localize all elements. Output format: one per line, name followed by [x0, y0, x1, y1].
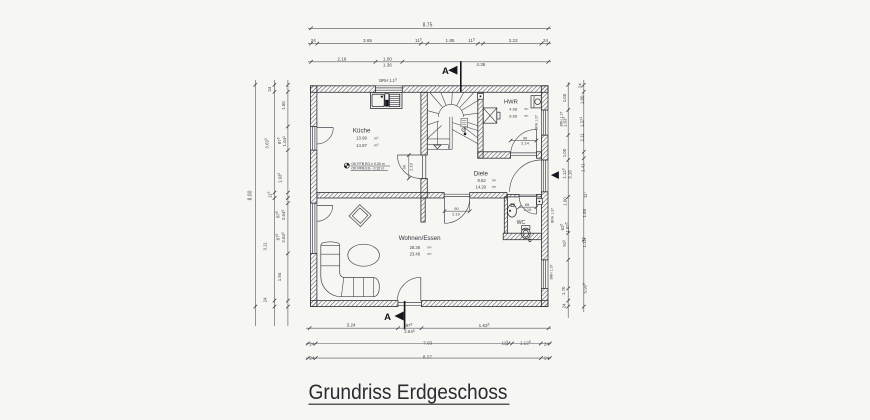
svg-text:Diele: Diele: [474, 171, 489, 178]
svg-text:2.22: 2.22: [509, 38, 518, 43]
svg-text:Grundriss Erdgeschoss: Grundriss Erdgeschoss: [309, 381, 508, 404]
svg-text:1.00: 1.00: [562, 93, 567, 102]
svg-text:3.16: 3.16: [567, 170, 572, 179]
svg-text:14.97: 14.97: [356, 143, 367, 148]
svg-text:A: A: [384, 312, 391, 323]
svg-text:28.36: 28.36: [410, 245, 421, 250]
svg-text:24: 24: [311, 38, 317, 43]
svg-text:90: 90: [454, 206, 459, 211]
svg-text:4.36: 4.36: [476, 62, 485, 67]
svg-text:1.00: 1.00: [562, 148, 567, 157]
svg-text:BRH 1.27: BRH 1.27: [535, 115, 539, 130]
svg-text:HWR: HWR: [504, 99, 518, 105]
svg-text:24: 24: [309, 356, 315, 361]
svg-text:2.14: 2.14: [521, 141, 530, 146]
svg-text:13.99: 13.99: [356, 136, 367, 141]
svg-text:OK RFB EG - 0.32 m: OK RFB EG - 0.32 m: [351, 167, 384, 171]
svg-text:1.50: 1.50: [281, 101, 286, 110]
svg-text:3.11: 3.11: [263, 242, 268, 251]
svg-text:2.19: 2.19: [408, 162, 413, 171]
svg-text:BRH 1.37: BRH 1.37: [551, 208, 555, 223]
svg-text:BRH 1.37: BRH 1.37: [550, 265, 554, 280]
svg-text:1.00: 1.00: [579, 95, 584, 104]
svg-text:8.75: 8.75: [423, 23, 433, 29]
svg-text:2.11: 2.11: [579, 133, 584, 142]
svg-text:WC: WC: [517, 220, 526, 226]
svg-text:24: 24: [544, 341, 550, 346]
svg-text:24: 24: [309, 341, 315, 346]
svg-text:1.69: 1.69: [582, 208, 587, 217]
svg-text:96: 96: [523, 135, 528, 140]
svg-text:Küche: Küche: [353, 128, 371, 135]
svg-text:24: 24: [577, 83, 582, 88]
svg-text:1.94: 1.94: [277, 272, 282, 281]
svg-text:1.00: 1.00: [383, 57, 392, 62]
svg-text:A: A: [442, 66, 449, 77]
svg-text:3.65: 3.65: [363, 38, 372, 43]
svg-text:14.29: 14.29: [476, 185, 487, 190]
svg-text:24: 24: [544, 356, 550, 361]
svg-text:24: 24: [562, 303, 567, 308]
svg-text:BRH 1.27: BRH 1.27: [559, 112, 563, 127]
svg-text:8.66: 8.66: [509, 114, 518, 119]
svg-text:4.68: 4.68: [509, 106, 518, 111]
svg-text:2.19: 2.19: [452, 211, 461, 216]
svg-text:Wohnen/Essen: Wohnen/Essen: [399, 235, 441, 242]
svg-text:8.00: 8.00: [248, 190, 254, 200]
svg-text:1.36: 1.36: [383, 62, 392, 67]
svg-text:24: 24: [543, 38, 549, 43]
svg-text:3.24: 3.24: [347, 323, 356, 328]
svg-text:1.70: 1.70: [561, 286, 566, 295]
svg-text:OK FFB EG ± 0.00 m: OK FFB EG ± 0.00 m: [351, 162, 384, 166]
svg-text:24: 24: [263, 297, 268, 302]
svg-text:24: 24: [267, 86, 272, 91]
svg-text:7.03: 7.03: [423, 340, 432, 345]
svg-text:BRH 1.10: BRH 1.10: [379, 78, 397, 83]
svg-text:2.19: 2.19: [337, 56, 346, 61]
svg-text:23.46: 23.46: [410, 252, 421, 257]
svg-text:90: 90: [401, 164, 406, 169]
svg-text:8.52: 8.52: [478, 178, 487, 183]
svg-text:2.19: 2.19: [524, 207, 533, 212]
svg-text:1.00: 1.00: [562, 197, 567, 206]
svg-text:8.27: 8.27: [423, 354, 432, 359]
svg-text:1.41: 1.41: [580, 163, 585, 172]
svg-text:1.85: 1.85: [446, 38, 455, 43]
